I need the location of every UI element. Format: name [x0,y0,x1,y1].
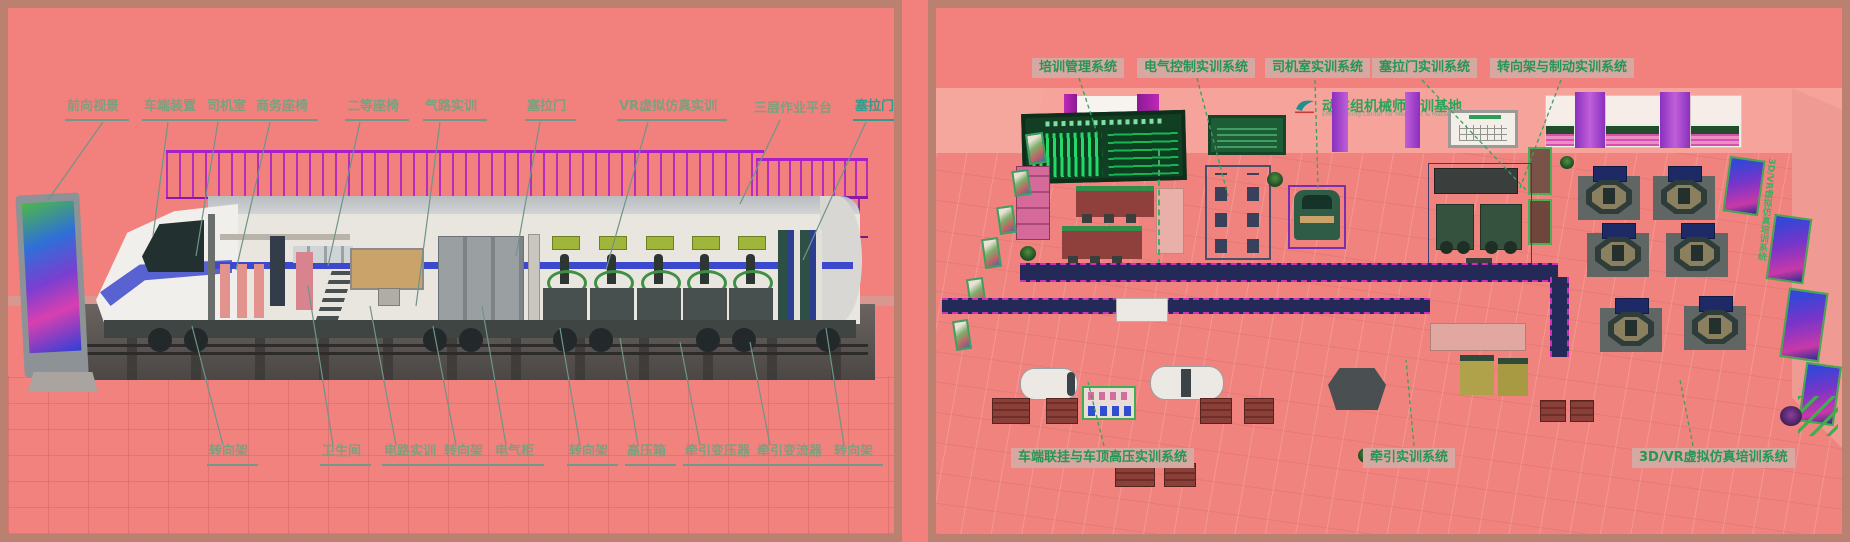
led-chart-right [1108,128,1179,176]
swoosh-logo-icon [1294,98,1316,114]
corridor-carpet-main [1020,263,1558,282]
pallet-crate [992,398,1030,424]
vr-station-4 [683,236,727,324]
service-table [378,288,400,306]
purple-curtain [1405,92,1420,148]
right-panel-training-base: 动车组机械师实训基地 EMU Training Center for Mecha… [928,0,1850,542]
window [1690,95,1742,148]
vr-canopy [692,236,720,250]
label-traction-converter: 牵引变流器 [755,445,832,466]
pod-seat [1603,188,1615,204]
tag-3dvr-training-system: 3D/VR虚拟仿真培训系统 [1632,448,1795,468]
wall-poster [1011,169,1031,197]
red-box [1540,400,1566,422]
vr-canopy [552,236,580,250]
console-desk-row-1 [1076,186,1154,217]
tail-door-panels [778,230,822,322]
forward-view-screen [15,192,88,377]
label-three-level-platform: 三层作业平台 [752,102,842,116]
pod-screen [1699,296,1733,312]
vr-station-1 [543,236,587,324]
wheel [459,328,483,352]
rack-bins-top [1088,392,1132,400]
pantograph-machine [1328,368,1386,410]
label-forward-view: 前向视景 [65,100,129,121]
traction-machine-1 [1460,355,1494,395]
cab-bulkhead [208,214,215,324]
stair-stripes [1798,396,1838,436]
wheel [696,328,720,352]
purple-curtain [1660,92,1690,148]
screen-content-lines [1217,126,1277,148]
vr-mat [543,288,587,322]
flower-field [1691,134,1739,146]
diagram-title-bar [1469,115,1501,119]
vr-pod [1653,166,1715,220]
purple-plant [1780,406,1802,426]
cab-console [1300,216,1334,223]
window [1545,95,1577,148]
led-header-dots [1045,118,1165,126]
annotated-training-base-renders: 前向视景 车端装置 司机室 商务座椅 二等座椅 气路实训 塞拉门 VR虚拟仿真实… [0,0,1850,542]
console-desk-row-2 [1062,226,1142,259]
corridor-carpet-vertical [1550,277,1569,357]
pod-seat [1691,245,1703,261]
vr-mat [683,288,727,322]
potted-plant [1560,156,1574,169]
label-second-class-seats: 二等座椅 [345,100,409,121]
label-circuit-training: 电路实训 [382,445,446,466]
pod-seat [1625,320,1637,336]
pod-screen [1593,166,1627,182]
vr-pod [1578,166,1640,220]
left-panel-emu-cutaway: 前向视景 车端装置 司机室 商务座椅 二等座椅 气路实训 塞拉门 VR虚拟仿真实… [0,0,902,542]
tag-driver-cab-training-system: 司机室实训系统 [1265,58,1370,78]
wheel [148,328,172,352]
label-car-end-device: 车端装置 [142,100,206,121]
wheel [423,328,447,352]
tag-bogie-brake-training-system: 转向架与制动实训系统 [1490,58,1634,78]
pod-seat [1678,188,1690,204]
pod-screen [1681,223,1715,239]
potted-plant [1020,246,1036,261]
cab-windshield [1302,195,1332,209]
traction-bench [1430,323,1526,351]
driver-cab-mockup [1294,190,1340,240]
wheel [553,328,577,352]
label-bogie-3: 转向架 [567,445,618,466]
label-business-seats: 商务座椅 [254,100,318,121]
label-vr-simulation-training: VR虚拟仿真实训 [617,100,727,121]
vr-canopy [599,236,627,250]
flower-field [1606,134,1659,146]
electric-control-screen [1208,115,1286,155]
screen-image [22,201,82,354]
corridor-carpet-lower [942,298,1430,314]
vr-canopy [646,236,674,250]
wheel [184,328,208,352]
tag-traction-training-system: 牵引实训系统 [1363,448,1455,468]
vr-pod [1587,223,1649,277]
label-bogie-4: 转向架 [832,445,883,466]
tag-plug-door-training-system: 塞拉门实训系统 [1372,58,1477,78]
pod-screen [1615,298,1649,314]
partition [528,234,540,326]
vr-station-2 [590,236,634,324]
label-bogie-1: 转向架 [207,445,258,466]
vr-mat [729,288,773,322]
trainer-console-col-1 [1215,173,1227,253]
label-electrical-cabinet: 电气柜 [493,445,544,466]
glass-partition-line [1158,150,1160,265]
equipment-panel-tan [350,248,424,290]
bogie-model-2 [1480,204,1522,250]
wheel [816,328,840,352]
potted-plant [1267,172,1283,187]
toilet-module [296,252,313,310]
diagram-sketch [1459,125,1507,141]
mockup-mid-band [1181,369,1191,397]
flower-field [1546,134,1574,146]
cabinet-dark [270,236,285,306]
vr-canopy [738,236,766,250]
mockup-end-ring [1067,372,1075,396]
pallet-crate [1244,398,1274,424]
purple-curtain [1332,92,1348,152]
label-plug-door: 塞拉门 [525,100,576,121]
parts-rack [1082,386,1136,420]
pod-screen [1668,166,1702,182]
business-seats [220,264,270,318]
tree-line [1546,126,1574,134]
label-high-voltage-box: 高压箱 [625,445,676,466]
pallet-crate [1200,398,1232,424]
vr-pod [1600,298,1662,352]
red-box [1570,400,1594,422]
rail-bottom [68,352,868,355]
vr-pod [1666,223,1728,277]
tag-coupling-roof-hv-training-system: 车端联挂与车顶高压实训系统 [1011,448,1194,468]
tail-scaffold-upper [756,158,868,199]
pod-seat [1709,318,1721,334]
vr-mat [637,288,681,322]
white-work-table [1116,298,1168,322]
label-plug-door-2: 塞拉门 [853,100,902,121]
pod-seat [1612,245,1624,261]
label-driver-cab: 司机室 [205,100,256,121]
vr-station-3 [637,236,681,324]
rack-bins-bottom [1088,406,1132,416]
bogie-model-1 [1436,204,1474,250]
tag-electric-control-training-system: 电气控制实训系统 [1137,58,1255,78]
luggage-rack [220,234,350,240]
vr-station-5 [729,236,773,324]
wheel [732,328,756,352]
pod-screen [1602,223,1636,239]
tag-training-management-system: 培训管理系统 [1032,58,1124,78]
electrical-cabinets [438,236,524,322]
tree-line [1691,126,1739,134]
pallet-crate [1046,398,1078,424]
car-end-mockup-2 [1150,366,1224,400]
roof-scaffold-rail [166,150,764,199]
window [1605,95,1662,148]
wheel [589,328,613,352]
tree-line [1606,126,1659,134]
trainer-console-col-2 [1247,173,1259,253]
label-bogie-2: 转向架 [442,445,493,466]
side-cabinet [1156,188,1184,254]
label-traction-transformer: 牵引变压器 [683,445,760,466]
traction-machine-2 [1498,358,1528,396]
label-toilet: 卫生间 [320,445,371,466]
car-end-mockup-1 [1020,368,1078,400]
electric-control-zone [1205,165,1271,260]
label-air-circuit-training: 气路实训 [423,100,487,121]
vr-pod [1684,296,1746,350]
screen-stand [28,372,98,392]
diagram-screen [1448,110,1518,148]
vr-mat [590,288,634,322]
desk-chairs-1 [1082,214,1146,223]
purple-curtain [1575,92,1605,148]
bogie-work-table [1434,168,1518,194]
